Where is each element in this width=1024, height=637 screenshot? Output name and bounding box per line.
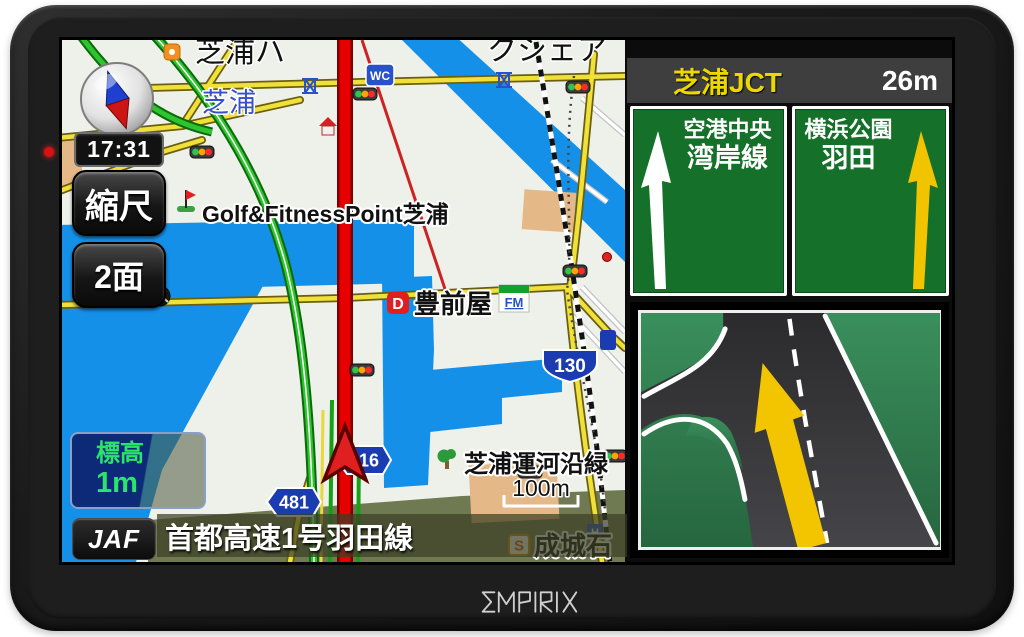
lane-sign-board: 空港中央 湾岸線 横浜公園 羽田	[630, 106, 949, 296]
power-led	[44, 147, 54, 157]
svg-text:芝浦ハ: 芝浦ハ	[195, 40, 285, 69]
svg-text:FM: FM	[505, 295, 524, 310]
yellow-lane-arrow-icon	[896, 123, 940, 285]
elevation-label: 標高	[96, 441, 144, 467]
brand-logo-glyphs: EMPIRIX	[466, 588, 594, 616]
scale-text: 100m	[512, 475, 570, 501]
traffic-light-icon	[190, 146, 214, 158]
guidance-panel: 芝浦JCT 26m 空港中央 湾岸線 横浜公園 羽田	[627, 40, 952, 562]
traffic-light-icon	[350, 364, 374, 376]
svg-text:WC: WC	[370, 69, 390, 83]
svg-text:芝浦: 芝浦	[202, 88, 256, 118]
traffic-light-icon	[566, 81, 590, 93]
junction-distance: 26m	[882, 65, 938, 97]
scale-button[interactable]: 縮尺	[72, 170, 166, 236]
clock-text: 17:31	[87, 136, 151, 163]
elevation-value: 1m	[96, 468, 138, 500]
lane-sign-right-text: 横浜公園 羽田	[795, 117, 902, 175]
lane-sign-left-line2: 湾岸線	[671, 142, 784, 174]
scale-button-label: 縮尺	[85, 179, 153, 228]
lane-guidance-3d	[630, 302, 949, 558]
current-road-bar: 首都高速1号羽田線	[157, 514, 641, 557]
poi-dot	[603, 253, 612, 262]
wc-icon: WC	[366, 64, 394, 86]
lane-guidance-3d-frame	[638, 310, 941, 550]
junction-header: 芝浦JCT 26m	[627, 58, 952, 103]
navigation-screen: WC FM D S H 481	[62, 40, 952, 562]
svg-text:クシェア: クシェア	[487, 40, 607, 67]
svg-text:481: 481	[279, 493, 309, 513]
svg-text:130: 130	[554, 356, 586, 377]
jaf-button-label: JAF	[88, 524, 140, 555]
shield-481: 481	[267, 488, 321, 516]
traffic-light-icon	[353, 88, 377, 100]
junction-name: 芝浦JCT	[673, 61, 782, 101]
jaf-button[interactable]: JAF	[72, 518, 156, 560]
svg-text:D: D	[392, 296, 404, 313]
lane-sign-right-line1: 横浜公園	[795, 117, 902, 142]
current-road-name: 首都高速1号羽田線	[165, 515, 413, 557]
svg-text:Golf&FitnessPoint芝浦: Golf&FitnessPoint芝浦	[202, 201, 449, 227]
elevation-indicator: 標高 1m	[70, 432, 206, 509]
poi-icon	[164, 44, 180, 60]
familymart-icon: FM	[499, 285, 529, 312]
svg-text:芝浦運河沿緑: 芝浦運河沿緑	[464, 450, 609, 478]
two-screen-button-label: 2面	[94, 252, 144, 298]
compass-button[interactable]	[78, 60, 156, 138]
lane-sign-right[interactable]: 横浜公園 羽田	[792, 106, 949, 296]
road-illustration	[641, 313, 940, 547]
traffic-light-icon	[563, 265, 587, 277]
two-screen-button[interactable]: 2面	[72, 242, 166, 308]
svg-text:豊前屋: 豊前屋	[414, 289, 492, 319]
clock-display: 17:31	[74, 132, 164, 167]
brand-logo: EMPIRIX	[466, 588, 594, 616]
lane-sign-left[interactable]: 空港中央 湾岸線	[630, 106, 787, 296]
shop-d-icon: D	[387, 292, 409, 314]
lane-sign-left-text: 空港中央 湾岸線	[671, 117, 784, 175]
lane-sign-right-line2: 羽田	[795, 142, 902, 174]
lane-sign-left-line1: 空港中央	[671, 117, 784, 142]
partial-shield	[600, 330, 616, 350]
